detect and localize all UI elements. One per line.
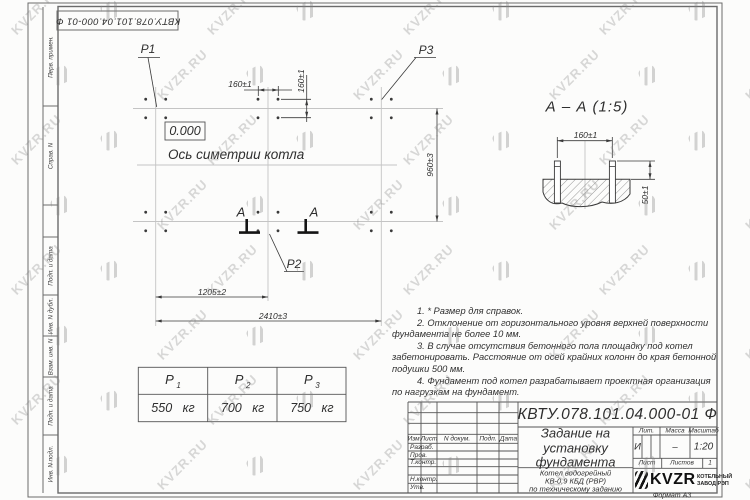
row-tkontr: Т.контр. [410, 459, 436, 466]
top-stamp-doc-number: КВТУ.078.101.04.000-01 Ф [55, 15, 180, 26]
title-line-2: установку [543, 440, 608, 455]
header-n-dokum: N докум. [444, 436, 470, 443]
margin-label-inv-dubl: Инв. N дубл. [47, 297, 54, 333]
technical-notes: 1. * Размер для справок. 2. Отклонение о… [392, 306, 722, 399]
lit-header: Лит. [639, 428, 654, 435]
row-nkontr: Н.контр. [410, 476, 438, 483]
kvzr-logo-bars-icon [635, 471, 648, 489]
lit-value: И [634, 441, 641, 452]
kvzr-logo-caption: КОТЕЛЬНЫЙ ЗАВОД РЭП [697, 474, 732, 487]
load-table-header-p2: P 2 [235, 373, 251, 391]
section-letter-right: А [310, 205, 319, 220]
listov-label: Листов [670, 460, 694, 467]
row-utv: Утв. [410, 484, 425, 491]
dim-row-spacing: 960±3 [425, 153, 435, 177]
drawing-sheet: КВТУ.078.101.04.000-01 Ф Перв. примен. С… [0, 0, 750, 500]
header-list: Лист [421, 436, 438, 443]
dim-section-bolt-pitch: 160±1 [574, 130, 598, 140]
title-block-doc-number: КВТУ.078.101.04.000-01 Ф [518, 406, 718, 424]
row-razrab: Разраб. [410, 444, 434, 451]
load-table-value-p1: 550 кг [151, 401, 194, 415]
load-table-value-p3: 750 кг [290, 401, 333, 415]
margin-label-podp-data-2: Подп. и дата [47, 386, 54, 425]
listov-value: 1 [708, 460, 712, 467]
header-izm: Изм. [408, 436, 422, 443]
title-line-3: фундамента [536, 454, 616, 469]
header-data: Дата [500, 436, 517, 443]
header-podp: Подп. [479, 436, 496, 443]
load-point-p3-label: P3 [419, 43, 434, 57]
kvzr-logo-caption-line2: ЗАВОД РЭП [697, 481, 732, 488]
dim-bolt-pitch-x: 160±1 [228, 79, 252, 89]
kvzr-logo-caption-line1: КОТЕЛЬНЫЙ [697, 474, 732, 481]
dim-bolt-pitch-y: 160±1 [296, 69, 306, 93]
load-point-p1-label: P1 [141, 42, 156, 56]
note-item: 2. Отклонение от горизонтального уровня … [392, 318, 722, 341]
masshtab-header: Масштаб [688, 428, 718, 435]
load-table-header-p3: P 3 [304, 373, 320, 391]
drawing-linework [0, 0, 750, 500]
subtitle-line-3: по техническому заданию [529, 485, 622, 494]
load-table-header-p1: P 1 [165, 373, 181, 391]
dim-bolt-protrusion: 50±1 [640, 185, 650, 204]
kvzr-logo-name: KVZR [650, 471, 696, 489]
massa-header: Масса [665, 428, 684, 435]
load-point-p2-label: P2 [287, 257, 302, 271]
dim-full-span: 2410±3 [259, 311, 287, 321]
margin-label-perv-primen: Перв. примен. [47, 36, 54, 78]
format-label: Формат А3 [653, 492, 691, 499]
dim-half-span: 1205±2 [198, 287, 226, 297]
axis-of-symmetry-label: Ось симетрии котла [168, 147, 304, 162]
level-mark: 0.000 [169, 124, 200, 138]
row-prov: Пров. [410, 452, 427, 459]
section-view-title: А – А (1:5) [546, 99, 629, 116]
massa-value: – [672, 441, 677, 452]
section-view-geometry [543, 161, 630, 207]
section-letter-left: А [237, 205, 246, 220]
title-line-1: Задание на [541, 426, 610, 441]
load-table-value-p2: 700 кг [221, 401, 264, 415]
margin-label-sprav-n: Справ. N [47, 142, 54, 168]
list-label: Лист [639, 460, 656, 467]
note-item: 1. * Размер для справок. [392, 306, 722, 318]
margin-label-vzam-inv: Взам. инв. N [47, 338, 54, 375]
masshtab-value: 1:20 [694, 441, 713, 452]
margin-label-podp-data-1: Подп. и дата [47, 246, 54, 285]
margin-label-inv-podl: Инв. N подл. [47, 446, 54, 483]
note-item: 3. В случае отсутствия бетонного пола пл… [392, 341, 722, 376]
note-item: 4. Фундамент под котел разрабатывает про… [392, 376, 722, 399]
